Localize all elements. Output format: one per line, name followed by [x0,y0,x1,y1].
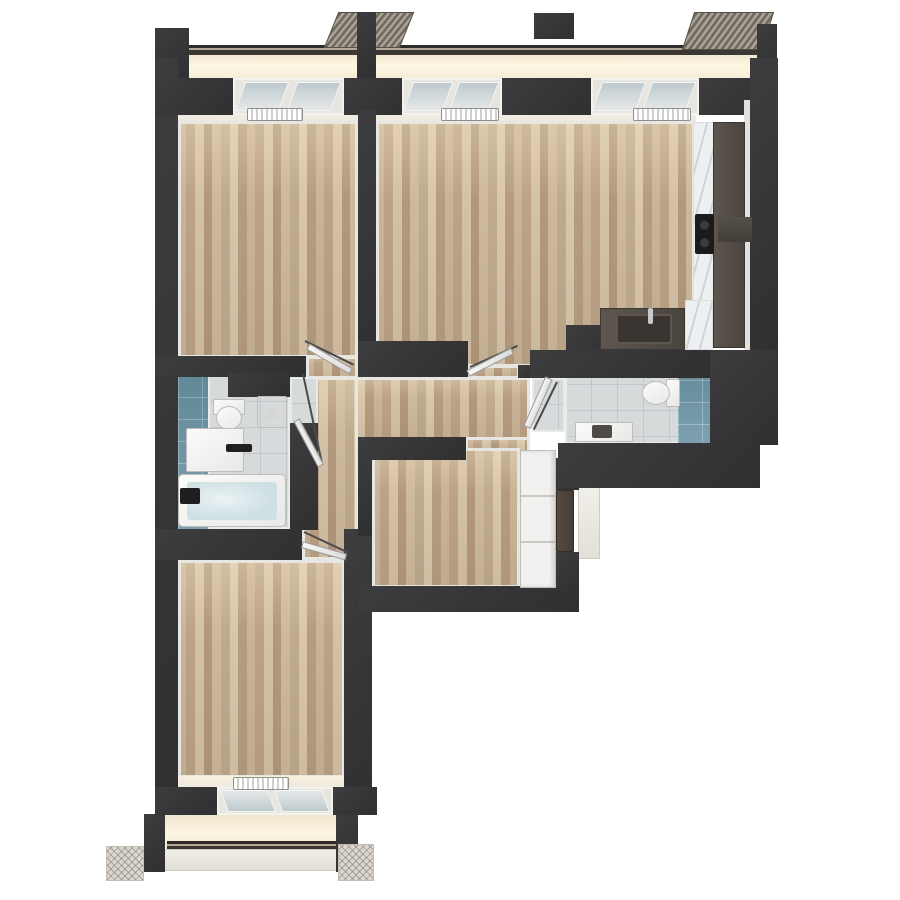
wall-left-outer [155,58,178,815]
balcony-rail-bottom [167,841,337,849]
entrance-door [556,490,574,552]
wall-top-segment-3 [502,78,591,115]
toilet-right-bowl [642,381,670,405]
bathtub-water [187,482,277,520]
radiator-living-1 [441,108,499,121]
wall-hallway-top-pillar [358,341,468,377]
kitchen-sink [616,314,672,344]
wardrobe [520,450,556,588]
kitchen-faucet [648,308,653,324]
wall-entry-right-lower [555,552,579,588]
radiator-living-2 [633,108,691,121]
wall-divider-bedrooms [358,110,376,377]
cooktop [695,214,714,254]
vanity-left-faucet [226,444,252,452]
bedroom2-floor [178,560,345,778]
wall-entry-top-stub [358,437,466,460]
wall-bathroom-right-side [710,350,778,445]
wall-bedroom2-right [344,529,372,815]
concrete-pad-right [338,844,374,881]
balcony-slab-bottom [157,849,345,871]
balcony-leg-left [144,814,165,872]
bedroom1-floor [178,121,358,358]
entry-room-floor [372,448,520,588]
entrance-landing [578,487,600,559]
wall-bedroom2-bottom-right [333,787,377,815]
canopy-small [534,13,574,39]
wall-bathroom-right-bottom [558,443,760,488]
kitchen-marble-corner [685,300,713,350]
wall-bedroom2-top [155,529,302,560]
vanity-right-sink [592,425,612,438]
balcony-rail-top [188,45,763,55]
wall-right-outer [750,58,778,352]
toilet-left-bowl [216,406,242,430]
wall-top-segment-1 [155,78,233,115]
window-bottom-pane-b [274,790,330,812]
wall-bathroom-left-niche [228,373,290,397]
canopy-post-middle [357,12,376,80]
wall-entry-bottom [358,586,579,612]
wall-bathroom-right-top [530,350,711,378]
radiator-bedroom1 [247,108,303,121]
concrete-pad-left [106,846,144,881]
oven-handle-block [718,217,752,242]
window-bottom-pane-a [220,790,276,812]
floor-plan-stage [0,0,900,900]
radiator-bedroom2 [233,777,289,790]
wall-bedroom2-bottom-left [155,787,217,815]
bathtub-faucet [180,488,200,504]
washing-machine [257,396,287,428]
